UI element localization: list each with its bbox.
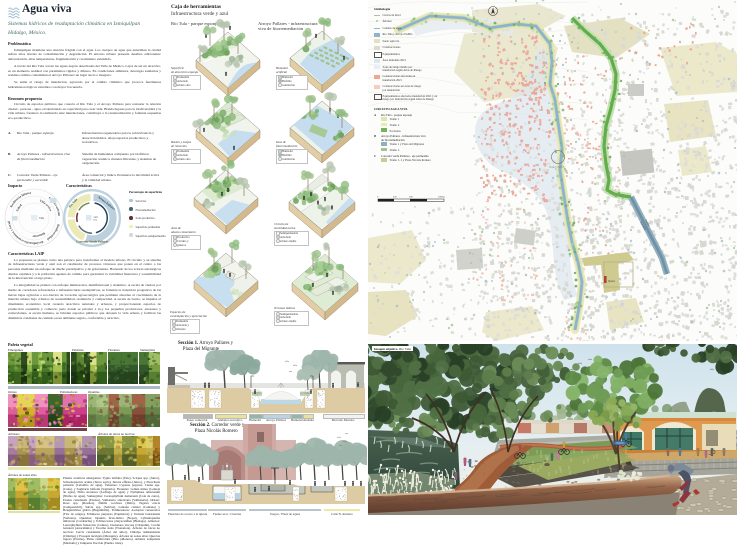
svg-text:Vida: Vida: [39, 217, 45, 220]
svg-text:Imagen objetivo: Imagen objetivo: [549, 166, 566, 169]
svg-text:Corredor Verde Pallares: Corredor Verde Pallares: [76, 240, 109, 244]
svg-text:Iglesia: Iglesia: [608, 280, 616, 283]
svg-text:1000m: 1000m: [438, 196, 445, 199]
